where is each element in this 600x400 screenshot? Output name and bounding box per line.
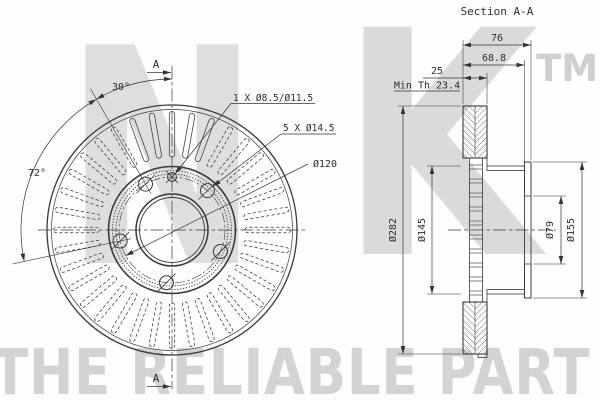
hat-wall-top — [487, 166, 525, 171]
vent-slot — [243, 207, 289, 220]
angle-30-label: 30° — [112, 82, 130, 93]
band-top-outboard-hatch — [463, 106, 475, 158]
angle-arc-30 — [97, 79, 173, 99]
dim-76-label: 76 — [491, 33, 503, 44]
vent-slot — [68, 168, 110, 195]
front-view: A A 30° 72° 1 X Ø8.5/Ø11.5 5 X Ø14.5 Ø12… — [13, 58, 337, 389]
bolt-hole-leader — [213, 134, 281, 187]
vent-slot — [217, 284, 250, 322]
dim-145-label: Ø145 — [416, 218, 428, 242]
vent-slot — [79, 152, 117, 185]
band-bottom-outboard-hatch — [463, 302, 475, 354]
vent-slot — [182, 113, 195, 159]
section-title: Section A-A — [461, 5, 534, 18]
dim-282-label: Ø282 — [387, 218, 399, 242]
hat-wall-bottom — [487, 290, 525, 295]
pin-hole-label: 1 X Ø8.5/Ø11.5 — [233, 93, 313, 104]
vent-slot — [149, 301, 162, 347]
vent-slot — [226, 275, 264, 308]
vent-slot — [110, 292, 137, 334]
dim-79-label: Ø79 — [544, 221, 556, 239]
angle-72-label: 72° — [28, 168, 46, 179]
bolt-circle-label: Ø120 — [313, 158, 337, 170]
bolt-hole-slash — [137, 175, 155, 193]
vent-slot — [243, 240, 289, 253]
vent-slot — [94, 284, 127, 322]
vent-slot — [217, 137, 250, 175]
min-th-label: Min Th 23.4 — [394, 81, 460, 92]
angle-arc-72 — [21, 99, 97, 261]
brake-disc-drawing: A A 30° 72° 1 X Ø8.5/Ø11.5 5 X Ø14.5 Ø12… — [0, 0, 600, 400]
flange-upper-hatch — [525, 162, 532, 196]
band-bottom-inboard-hatch — [475, 302, 487, 354]
vent-slot — [226, 152, 264, 185]
vent-slot — [149, 113, 162, 159]
dim-25-label: 25 — [431, 66, 443, 77]
dim-155-label: Ø155 — [565, 218, 577, 242]
vent-slot — [234, 264, 276, 291]
section-label-bottom: A — [153, 372, 160, 385]
band-top-inboard-hatch — [475, 106, 487, 158]
bolt-hole-label: 5 X Ø14.5 — [283, 123, 334, 134]
pin-hole-leader — [175, 104, 231, 174]
vent-slot — [55, 207, 101, 220]
bolt-hole-slash — [111, 232, 129, 250]
flange-lower-hatch — [525, 264, 532, 298]
vent-slot — [55, 240, 101, 253]
bolt-hole-slash — [198, 182, 216, 200]
vent-slot — [79, 275, 117, 308]
vent-slot — [182, 301, 195, 347]
dim-68-8-label: 68.8 — [482, 53, 506, 64]
section-view: Section A-A — [387, 5, 587, 358]
section-label-top: A — [153, 58, 160, 71]
technical-drawing-page: N K TM THE RELIABLE PART A A — [0, 0, 600, 400]
